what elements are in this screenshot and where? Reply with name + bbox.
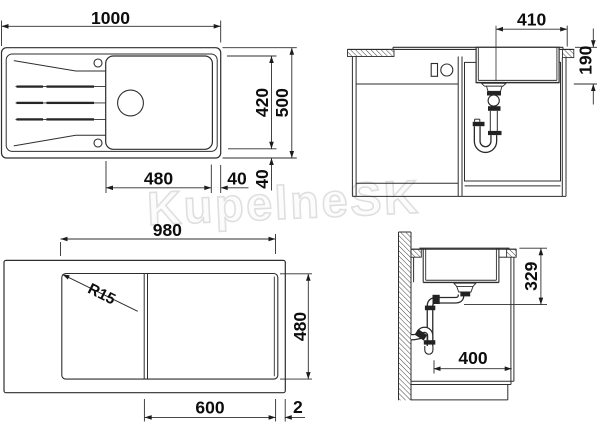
svg-text:480: 480 [290,312,310,341]
svg-text:410: 410 [517,10,546,30]
svg-text:500: 500 [272,88,292,117]
svg-text:600: 600 [195,398,224,418]
svg-text:40: 40 [227,168,247,188]
svg-text:40: 40 [252,169,272,189]
svg-text:980: 980 [153,220,182,240]
svg-text:190: 190 [576,45,596,74]
svg-text:420: 420 [252,88,272,117]
svg-text:1000: 1000 [91,8,130,28]
svg-text:329: 329 [521,261,541,290]
svg-text:480: 480 [144,168,173,188]
svg-text:400: 400 [458,348,487,368]
svg-text:2: 2 [293,397,303,417]
